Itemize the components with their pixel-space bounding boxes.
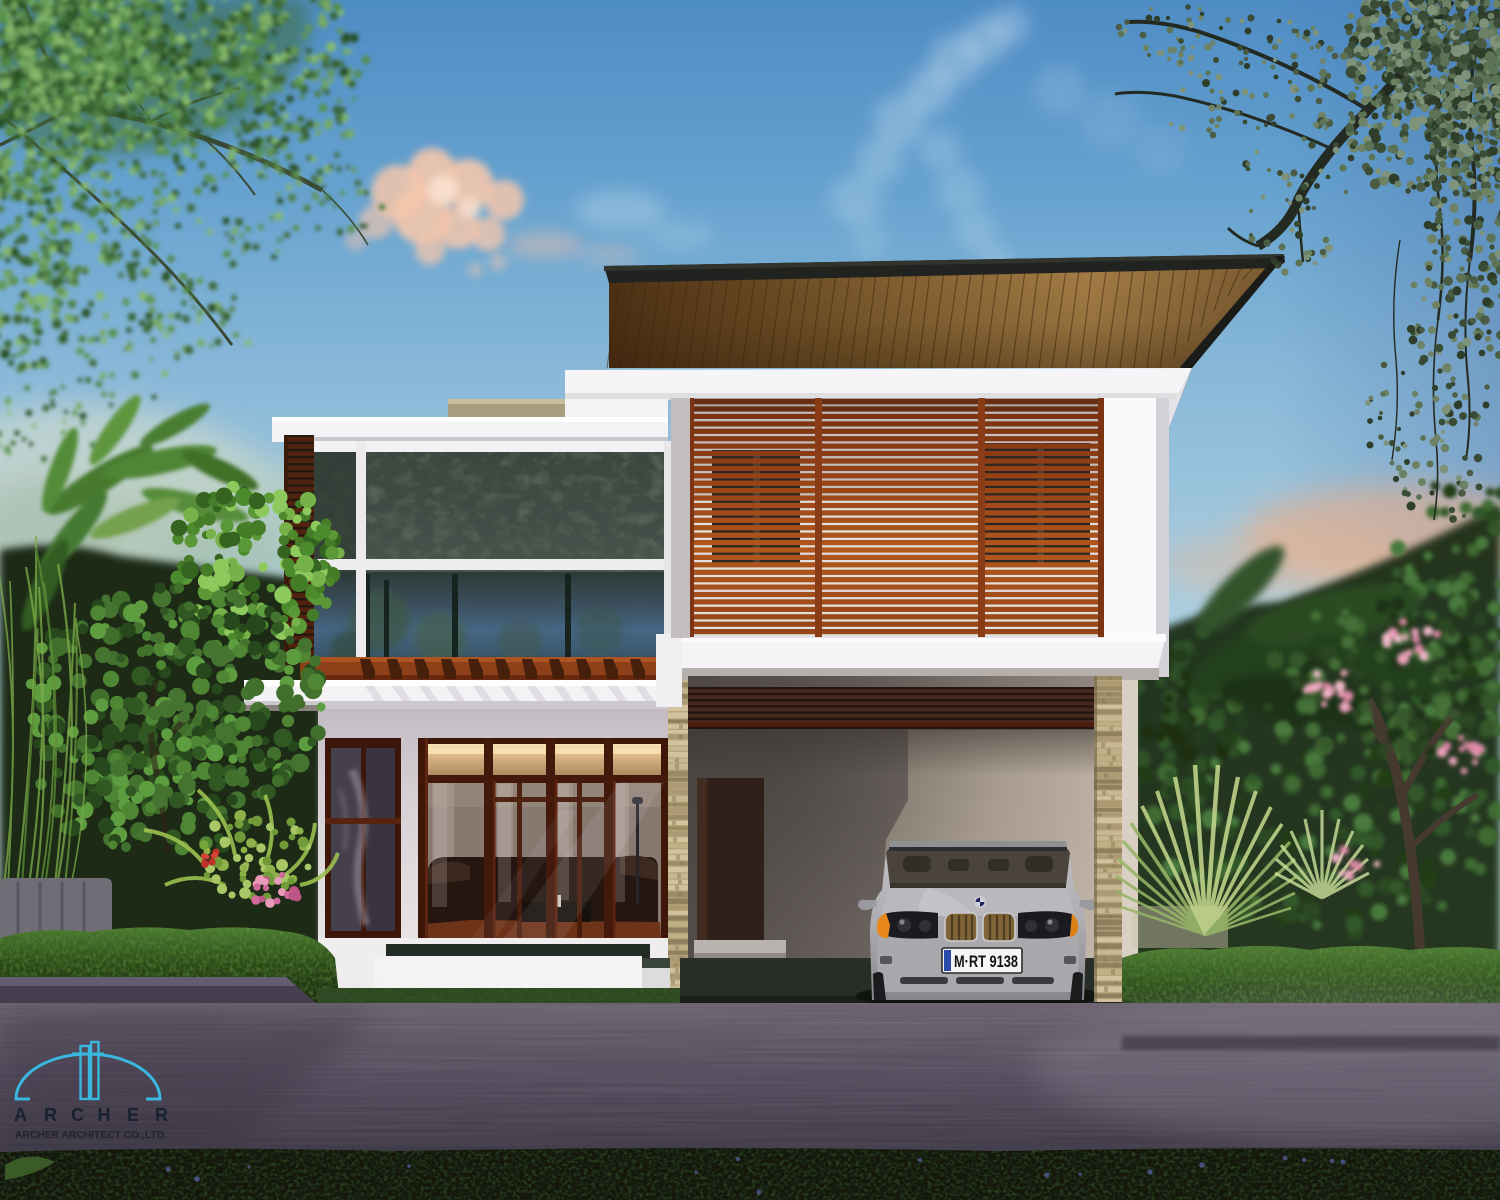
svg-text:M·RT 9138: M·RT 9138 xyxy=(954,953,1018,971)
